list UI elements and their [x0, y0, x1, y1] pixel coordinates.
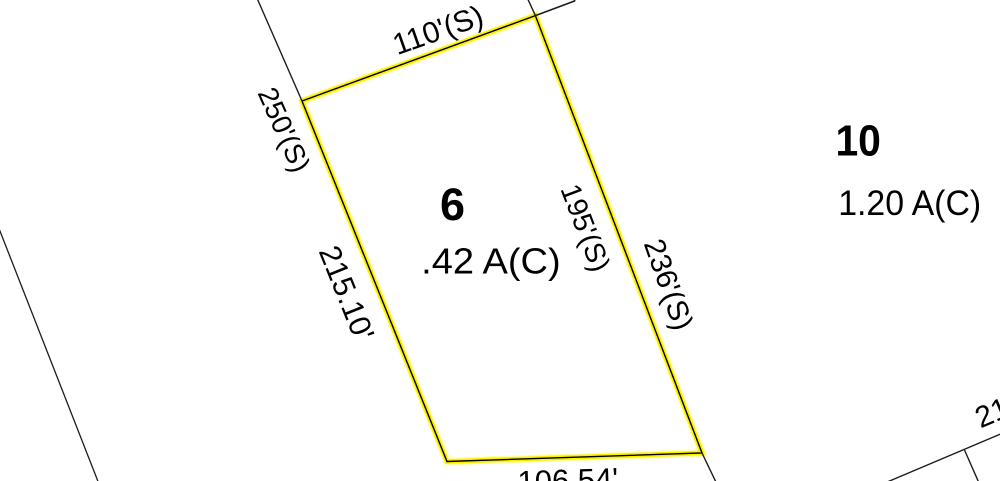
svg-text:1.20 A(C): 1.20 A(C): [838, 184, 981, 223]
svg-text:106.54': 106.54': [517, 461, 619, 481]
svg-text:.42 A(C): .42 A(C): [421, 240, 561, 281]
svg-text:10: 10: [835, 116, 881, 165]
svg-text:6: 6: [440, 179, 465, 230]
